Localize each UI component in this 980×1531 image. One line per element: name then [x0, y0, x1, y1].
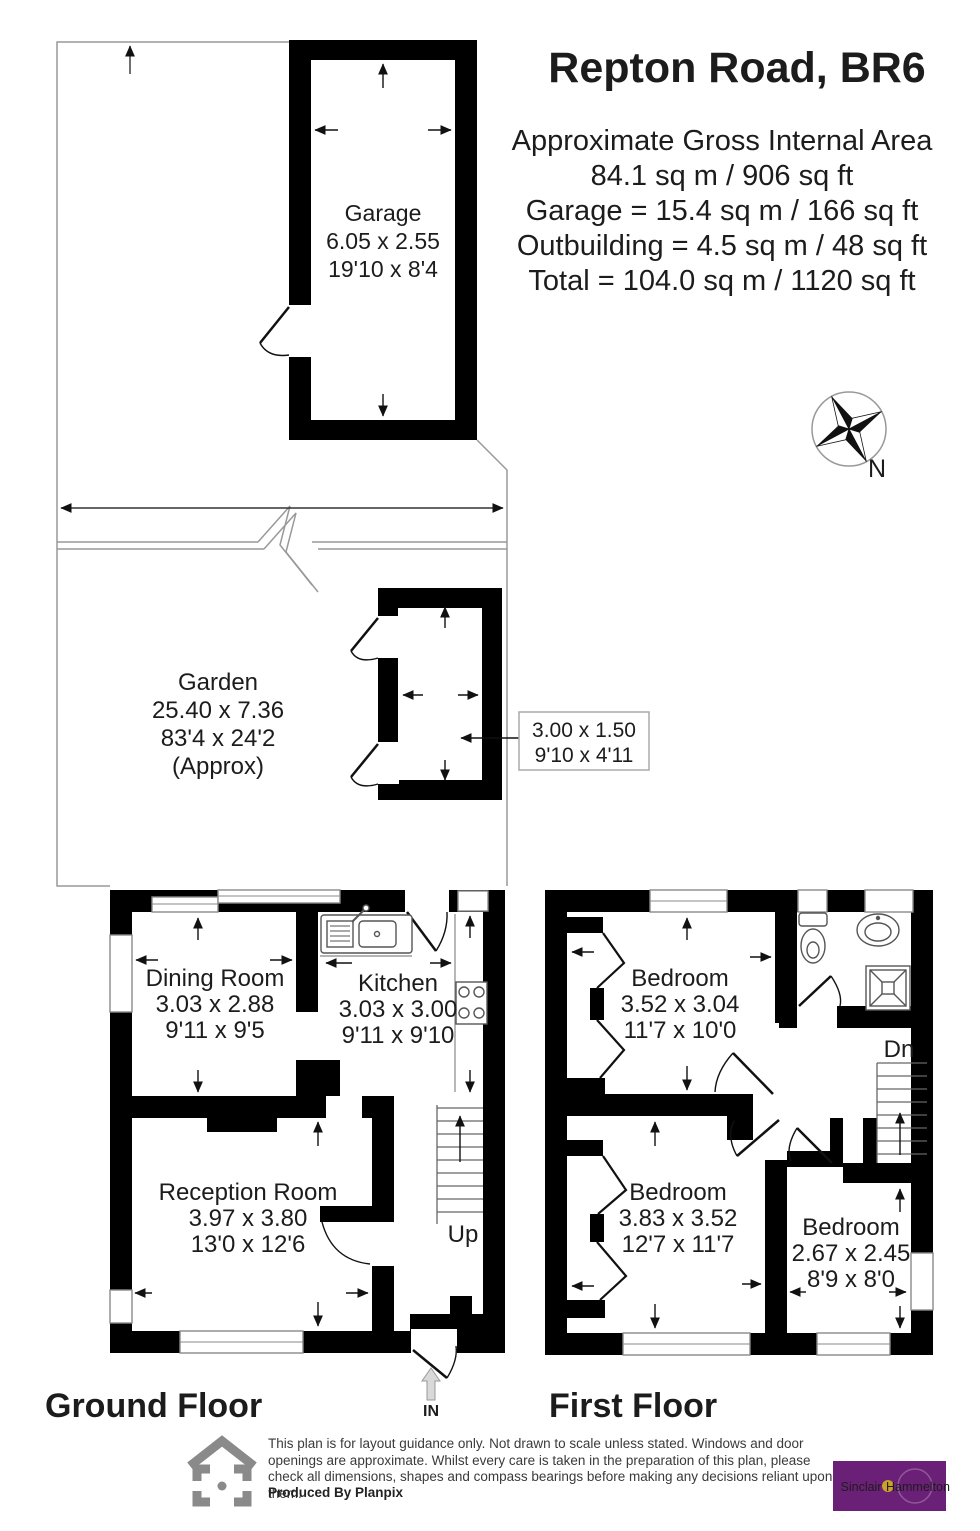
- planpix-house-icon: [190, 1441, 254, 1502]
- area-line: Total = 104.0 sq m / 1120 sq ft: [528, 265, 915, 297]
- svg-text:Garage: Garage: [345, 200, 422, 226]
- kitchen-label: Kitchen 3.03 x 3.00 9'11 x 9'10: [339, 970, 458, 1049]
- entrance-label: IN: [423, 1403, 439, 1420]
- outbuilding-dimension-box: 3.00 x 1.50 9'10 x 4'11: [519, 712, 649, 770]
- svg-text:83'4 x 24'2: 83'4 x 24'2: [161, 725, 276, 752]
- garden-label: Garden 25.40 x 7.36 83'4 x 24'2 (Approx): [152, 669, 284, 780]
- svg-text:9'10 x 4'11: 9'10 x 4'11: [535, 744, 634, 767]
- svg-text:Garden: Garden: [178, 669, 258, 696]
- outbuilding: 3.00 x 1.50 9'10 x 4'11: [351, 588, 649, 800]
- first-floor-plan: Dn Bedroom 3.52 x 3.04 11'7 x 10'0 Bedro…: [545, 890, 933, 1355]
- svg-text:25.40 x 7.36: 25.40 x 7.36: [152, 697, 284, 724]
- area-line: 84.1 sq m / 906 sq ft: [591, 160, 854, 192]
- reception-room-label: Reception Room 3.97 x 3.80 13'0 x 12'6: [159, 1179, 338, 1258]
- header: Repton Road, BR6 Approximate Gross Inter…: [512, 44, 934, 297]
- ground-floor-plan: Up Dining Room 3.03 x 2.88 9'11 x 9'5 Ki…: [110, 888, 505, 1420]
- svg-text:11'7 x 10'0: 11'7 x 10'0: [624, 1017, 737, 1044]
- wardrobe-zigzag: [567, 917, 626, 1318]
- window: [110, 935, 132, 1012]
- window: [458, 891, 488, 911]
- svg-text:3.83 x 3.52: 3.83 x 3.52: [619, 1205, 738, 1232]
- window: [865, 890, 913, 912]
- svg-text:19'10 x 8'4: 19'10 x 8'4: [328, 256, 438, 282]
- svg-text:8'9 x 8'0: 8'9 x 8'0: [807, 1266, 895, 1293]
- page-title: Repton Road, BR6: [548, 44, 925, 92]
- entrance-arrow-icon: [422, 1368, 440, 1400]
- reception-door-arc: [322, 1222, 370, 1264]
- shower-icon: [866, 966, 910, 1010]
- svg-text:(Approx): (Approx): [172, 753, 264, 780]
- stairs-up-label: Up: [448, 1221, 479, 1248]
- svg-text:3.52 x 3.04: 3.52 x 3.04: [621, 991, 740, 1018]
- back-door-arc: [407, 912, 447, 951]
- svg-text:9'11 x 9'5: 9'11 x 9'5: [165, 1017, 264, 1044]
- svg-text:13'0 x 12'6: 13'0 x 12'6: [191, 1231, 306, 1258]
- svg-text:6.05 x 2.55: 6.05 x 2.55: [326, 228, 440, 254]
- garage-door-arc: [260, 307, 289, 356]
- svg-text:3.00 x 1.50: 3.00 x 1.50: [532, 719, 636, 742]
- stairs-down-label: Dn: [884, 1036, 915, 1063]
- floor-plan-page: Repton Road, BR6 Approximate Gross Inter…: [0, 0, 980, 1531]
- bedroom2-label: Bedroom 3.83 x 3.52 12'7 x 11'7: [619, 1179, 738, 1258]
- svg-text:2.67 x 2.45: 2.67 x 2.45: [792, 1240, 911, 1267]
- floor-plan-canvas: Repton Road, BR6 Approximate Gross Inter…: [0, 0, 980, 1531]
- svg-text:Bedroom: Bedroom: [629, 1179, 726, 1206]
- svg-text:Bedroom: Bedroom: [802, 1214, 899, 1241]
- window: [110, 1290, 132, 1323]
- area-line: Outbuilding = 4.5 sq m / 48 sq ft: [517, 230, 927, 262]
- svg-text:Bedroom: Bedroom: [631, 965, 728, 992]
- svg-text:3.03 x 2.88: 3.03 x 2.88: [156, 991, 275, 1018]
- kitchen-sink-icon: [321, 905, 412, 953]
- basin-icon: [857, 914, 899, 946]
- brand-name-right: Hammelton: [886, 1480, 950, 1494]
- compass-north-label: N: [868, 455, 886, 483]
- outbuilding-door-arc: [351, 618, 378, 786]
- window: [911, 1253, 933, 1310]
- bedroom3-label: Bedroom 2.67 x 2.45 8'9 x 8'0: [792, 1214, 911, 1293]
- first-floor-title: First Floor: [549, 1387, 717, 1425]
- garage-label: Garage 6.05 x 2.55 19'10 x 8'4: [326, 200, 440, 282]
- svg-text:Kitchen: Kitchen: [358, 970, 438, 997]
- ground-floor-title: Ground Floor: [45, 1387, 262, 1425]
- garage: Garage 6.05 x 2.55 19'10 x 8'4: [260, 40, 477, 440]
- hob-icon: [456, 982, 487, 1024]
- garden-plot-boundary: [57, 42, 507, 886]
- svg-text:3.03 x 3.00: 3.03 x 3.00: [339, 996, 458, 1023]
- svg-text:Reception Room: Reception Room: [159, 1179, 338, 1206]
- produced-by-text: Produced By Planpix: [268, 1485, 403, 1500]
- garage-door-opening: [286, 305, 313, 357]
- svg-text:Dining Room: Dining Room: [146, 965, 285, 992]
- window: [798, 890, 827, 912]
- brand-logo: Sinclair Hammelton: [833, 1461, 950, 1511]
- dining-room-label: Dining Room 3.03 x 2.88 9'11 x 9'5: [146, 965, 285, 1044]
- bedroom1-label: Bedroom 3.52 x 3.04 11'7 x 10'0: [621, 965, 740, 1044]
- toilet-icon: [799, 913, 827, 963]
- compass-rose-icon: N: [799, 379, 899, 483]
- area-line: Approximate Gross Internal Area: [512, 125, 934, 157]
- area-line: Garage = 15.4 sq m / 166 sq ft: [526, 195, 919, 227]
- svg-text:12'7 x 11'7: 12'7 x 11'7: [622, 1231, 735, 1258]
- svg-text:3.97 x 3.80: 3.97 x 3.80: [189, 1205, 308, 1232]
- svg-text:9'11 x 9'10: 9'11 x 9'10: [342, 1022, 455, 1049]
